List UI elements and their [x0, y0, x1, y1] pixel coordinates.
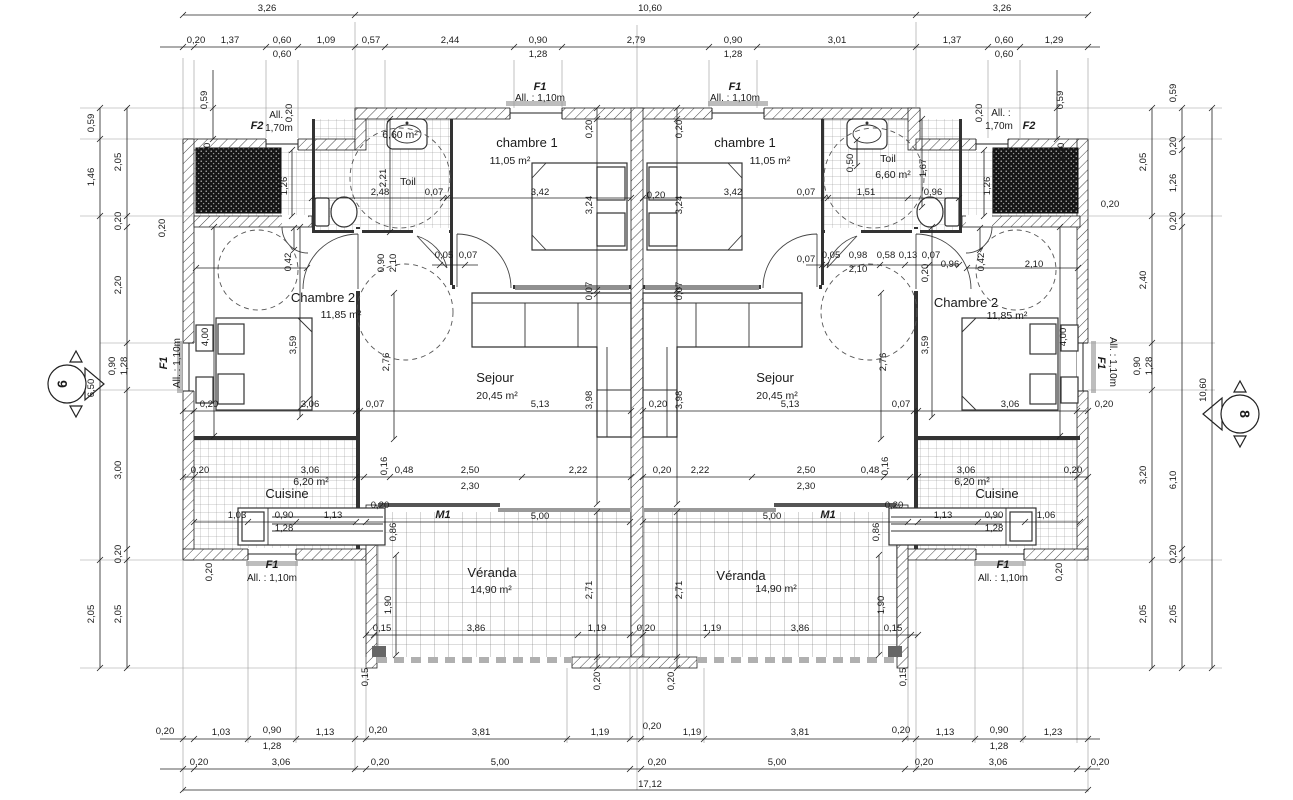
- dim-label: 1,28: [985, 523, 1004, 534]
- dim-label: 0,20: [647, 190, 666, 201]
- dim-label: 3,59: [288, 336, 299, 355]
- dim-label: 0,20: [1095, 399, 1114, 410]
- dim-label: 10,60: [1198, 378, 1209, 402]
- dim-label: 17,12: [638, 779, 662, 790]
- dim-label: 0,20: [1056, 143, 1067, 162]
- dim-label: 0,13: [899, 250, 918, 261]
- dim-label: 0,59: [199, 91, 210, 110]
- dim-label: 2,05: [1138, 153, 1149, 172]
- dim-label: 0,20: [653, 465, 672, 476]
- dim-label: 0,90: [990, 725, 1009, 736]
- dim-label: 0,90: [985, 510, 1004, 521]
- dim-label: 0,20: [648, 757, 667, 768]
- dim-label: 3,86: [467, 623, 486, 634]
- room-name-label: Cuisine: [265, 486, 308, 501]
- dim-label: 1,28: [1144, 357, 1155, 376]
- allege-label: All. : 1,10m: [247, 573, 297, 584]
- dim-label: 1,28: [275, 523, 294, 534]
- dim-label: 0,20: [371, 757, 390, 768]
- dim-label: 3,06: [272, 757, 291, 768]
- dimension-line: [806, 262, 962, 268]
- dimension-line: [1209, 105, 1215, 671]
- dim-label: 3,59: [920, 336, 931, 355]
- sofa-right: [643, 293, 802, 437]
- room-area-label: 11,05 m²: [750, 155, 791, 167]
- dim-label: 3,42: [724, 187, 743, 198]
- dim-label: 1,26: [279, 177, 290, 196]
- allege-label: All. :: [991, 108, 1010, 119]
- room-name-label: chambre 1: [714, 135, 775, 150]
- dim-label: 3,98: [584, 391, 595, 410]
- dim-label: 0,90: [376, 254, 387, 273]
- opening-code-label: M1: [435, 509, 450, 521]
- section-number-label: 8: [1237, 410, 1253, 418]
- dim-label: 2,50: [797, 465, 816, 476]
- dim-label: 0,16: [880, 457, 891, 476]
- dim-label: 0,60: [273, 49, 292, 60]
- dim-label: 5,00: [763, 511, 782, 522]
- dim-label: 0,20: [649, 399, 668, 410]
- dim-label: 0,07: [584, 282, 595, 301]
- room-area-label: Toil: [880, 153, 896, 165]
- dim-label: 0,20: [1168, 212, 1179, 231]
- dim-label: 3,06: [989, 757, 1008, 768]
- room-area-label: 20,45 m²: [476, 390, 518, 402]
- bed-chambre2-left: [196, 318, 312, 410]
- dim-label: 2,05: [1168, 605, 1179, 624]
- dim-label: 2,22: [691, 465, 710, 476]
- sideboard-right: [645, 285, 759, 290]
- sideboard-left: [515, 285, 629, 290]
- dimension-line: [210, 70, 216, 142]
- dim-label: 1,51: [857, 187, 876, 198]
- dim-label: 0,07: [366, 399, 385, 410]
- dim-label: 0,98: [849, 250, 868, 261]
- floor-plan-page: 3,2610,603,260,201,370,600,601,090,572,4…: [0, 0, 1293, 800]
- room-name-label: Véranda: [716, 568, 766, 583]
- dim-label: 3,06: [301, 399, 320, 410]
- sofa-left: [472, 293, 631, 437]
- room-name-label: Sejour: [476, 370, 514, 385]
- opening-code-label: F1: [1095, 357, 1107, 370]
- dim-label: 10,60: [638, 3, 662, 14]
- sliding-door-m1-right: [774, 503, 896, 507]
- dim-label: 0,20: [915, 757, 934, 768]
- opening-code-label: F1: [158, 357, 170, 370]
- dim-label: 1,67: [918, 159, 929, 178]
- dim-label: 0,20: [1168, 545, 1179, 564]
- dim-label: 2,71: [584, 581, 595, 600]
- dim-label: 1,23: [1044, 727, 1063, 738]
- dimension-line: [1179, 105, 1185, 671]
- dim-label: 3,98: [674, 391, 685, 410]
- dim-label: 1,28: [529, 49, 548, 60]
- dim-label: 0,86: [871, 523, 882, 542]
- dim-label: 2,30: [797, 481, 816, 492]
- dim-label: 1,46: [86, 168, 97, 187]
- dim-label: 1,19: [588, 623, 607, 634]
- dim-label: 2,40: [1138, 271, 1149, 290]
- dim-label: 0,42: [283, 253, 294, 272]
- room-name-label: Chambre 2: [291, 290, 355, 305]
- allege-label: 1,70m: [985, 121, 1013, 132]
- dim-label: 2,48: [371, 187, 390, 198]
- opening-code-label: F2: [251, 120, 264, 132]
- dim-label: 0,60: [995, 35, 1014, 46]
- dim-label: 1,13: [934, 510, 953, 521]
- room-area-label: 11,05 m²: [490, 155, 531, 167]
- dim-label: 1,26: [982, 177, 993, 196]
- dimension-line: [180, 12, 1091, 18]
- dim-label: 0,20: [204, 563, 215, 582]
- dim-label: 0,20: [584, 120, 595, 139]
- dim-label: 3,00: [113, 461, 124, 480]
- allege-label: All. : 1,10m: [710, 93, 760, 104]
- dim-label: 0,07: [425, 187, 444, 198]
- dim-label: 3,81: [472, 727, 491, 738]
- dim-label: 0,20: [156, 726, 175, 737]
- dim-label: 0,60: [995, 49, 1014, 60]
- dim-label: 2,79: [627, 35, 646, 46]
- dim-label: 0,15: [360, 668, 371, 687]
- dim-label: 2,71: [674, 581, 685, 600]
- dim-label: 1,13: [316, 727, 335, 738]
- dim-label: 0,07: [459, 250, 478, 261]
- dim-label: 2,76: [381, 353, 392, 372]
- dim-label: 0,20: [974, 104, 985, 123]
- dim-label: 6,50: [86, 379, 97, 398]
- dim-label: 1,03: [228, 510, 247, 521]
- dim-label: 1,19: [683, 727, 702, 738]
- dim-label: 5,00: [768, 757, 787, 768]
- dim-label: 2,20: [113, 276, 124, 295]
- dimension-line: [160, 766, 1100, 772]
- opening-code-label: F2: [1023, 120, 1036, 132]
- dim-label: 2,22: [569, 465, 588, 476]
- dim-label: 1,06: [1037, 510, 1056, 521]
- room-name-label: Sejour: [756, 370, 794, 385]
- allege-label: All. : 1,10m: [172, 338, 183, 388]
- dim-label: 2,05: [1138, 605, 1149, 624]
- dim-label: 0,07: [892, 399, 911, 410]
- dim-label: 3,26: [993, 3, 1012, 14]
- dim-label: 0,20: [920, 264, 931, 283]
- dim-label: 3,26: [258, 3, 277, 14]
- sink-right: [847, 119, 887, 149]
- dim-label: 5,00: [491, 757, 510, 768]
- allege-label: All. : 1,10m: [1107, 337, 1118, 387]
- dim-label: 0,42: [976, 253, 987, 272]
- opening-code-label: F1: [729, 81, 742, 93]
- room-name-label: chambre 1: [496, 135, 557, 150]
- dimension-line: [124, 105, 130, 671]
- dim-label: 5,00: [531, 511, 550, 522]
- dim-label: 0,96: [924, 187, 943, 198]
- dim-label: 0,07: [674, 282, 685, 301]
- dim-label: 0,90: [1132, 357, 1143, 376]
- dim-label: 0,20: [1101, 199, 1120, 210]
- dim-label: 3,06: [301, 465, 320, 476]
- dim-label: 2,50: [461, 465, 480, 476]
- dimension-line: [1149, 105, 1155, 671]
- dim-label: 0,20: [592, 672, 603, 691]
- dim-label: 2,10: [388, 254, 399, 273]
- kitchen-counter-right: [889, 508, 1036, 545]
- dim-label: 0,90: [263, 725, 282, 736]
- dim-label: 0,86: [388, 523, 399, 542]
- dim-label: 1,19: [703, 623, 722, 634]
- section-number-label: 6: [54, 380, 70, 388]
- dim-label: 0,20: [1168, 137, 1179, 156]
- dim-label: 1,19: [591, 727, 610, 738]
- toilet-right: [917, 197, 959, 227]
- dim-label: 0,05: [435, 250, 454, 261]
- dim-label: 0,20: [191, 465, 210, 476]
- dim-label: 0,90: [107, 357, 118, 376]
- room-name-label: Véranda: [467, 565, 517, 580]
- party-wall: [631, 108, 643, 657]
- dim-label: 0,20: [1064, 465, 1083, 476]
- dim-label: 1,28: [724, 49, 743, 60]
- dim-label: 0,20: [892, 725, 911, 736]
- dim-label: 0,58: [877, 250, 896, 261]
- dim-label: 1,90: [383, 596, 394, 615]
- dim-label: 2,76: [878, 353, 889, 372]
- dim-label: 0,20: [1091, 757, 1110, 768]
- sliding-door-m1-left: [378, 503, 500, 507]
- dim-label: 0,90: [529, 35, 548, 46]
- dim-label: 0,07: [797, 187, 816, 198]
- room-area-label: 11,85 m²: [321, 309, 362, 321]
- dim-label: 1,09: [317, 35, 336, 46]
- dim-label: 0,48: [395, 465, 414, 476]
- dim-label: 3,24: [584, 196, 595, 215]
- dim-label: 2,10: [1025, 259, 1044, 270]
- dim-label: 0,48: [861, 465, 880, 476]
- dim-label: 1,28: [263, 741, 282, 752]
- dim-label: 6,10: [1168, 471, 1179, 490]
- dim-label: 1,90: [876, 596, 887, 615]
- dim-label: 0,96: [941, 259, 960, 270]
- dim-label: 0,20: [885, 500, 904, 511]
- dim-label: 0,20: [187, 35, 206, 46]
- dim-label: 2,44: [441, 35, 460, 46]
- dimension-line: [180, 787, 1091, 793]
- dim-label: 1,28: [119, 357, 130, 376]
- dim-label: 4,00: [200, 328, 211, 347]
- dim-label: 0,16: [379, 457, 390, 476]
- floor-plan-svg: 3,2610,603,260,201,370,600,601,090,572,4…: [0, 0, 1293, 800]
- dim-label: 2,05: [113, 153, 124, 172]
- dim-label: 0,20: [666, 672, 677, 691]
- dim-label: 1,28: [990, 741, 1009, 752]
- dim-label: 0,15: [373, 623, 392, 634]
- dim-label: 3,86: [791, 623, 810, 634]
- dim-label: 0,57: [362, 35, 381, 46]
- bed-chambre1-left: [532, 163, 627, 250]
- kitchen-counter-left: [238, 508, 385, 545]
- dim-label: 5,13: [531, 399, 550, 410]
- dimension-line: [432, 262, 478, 268]
- dim-label: 0,20: [371, 500, 390, 511]
- opening-code-label: F1: [997, 559, 1010, 571]
- allege-label: All. : 1,10m: [515, 93, 565, 104]
- dim-label: 0,20: [674, 120, 685, 139]
- room-name-label: Cuisine: [975, 486, 1018, 501]
- dim-label: 3,06: [1001, 399, 1020, 410]
- opening-code-label: F1: [266, 559, 279, 571]
- dim-label: 3,06: [957, 465, 976, 476]
- opening-code-label: F1: [534, 81, 547, 93]
- dim-label: 0,20: [369, 725, 388, 736]
- dim-label: 1,37: [943, 35, 962, 46]
- dim-label: 0,50: [845, 154, 856, 173]
- dim-label: 2,05: [113, 605, 124, 624]
- dim-label: 1,13: [324, 510, 343, 521]
- room-area-label: 11,85 m²: [987, 310, 1028, 322]
- dim-label: 0,07: [922, 250, 941, 261]
- dim-label: 2,10: [849, 264, 868, 275]
- dim-label: 0,20: [637, 623, 656, 634]
- opening-code-label: M1: [820, 509, 835, 521]
- dim-label: 3,20: [1138, 466, 1149, 485]
- toilet-left: [315, 197, 357, 227]
- room-area-label: 14,90 m²: [470, 584, 512, 596]
- dim-label: 4,00: [1058, 328, 1069, 347]
- dim-label: 1,03: [212, 727, 231, 738]
- dim-label: 0,20: [643, 721, 662, 732]
- dim-label: 3,24: [674, 196, 685, 215]
- dim-label: 0,15: [898, 668, 909, 687]
- dim-label: 0,90: [724, 35, 743, 46]
- dim-label: 0,20: [157, 219, 168, 238]
- dim-label: 0,90: [275, 510, 294, 521]
- dim-label: 0,59: [86, 114, 97, 133]
- dim-label: 0,20: [202, 143, 213, 162]
- dim-label: 1,37: [221, 35, 240, 46]
- room-area-label: 6,60 m²: [875, 169, 911, 181]
- room-name-label: Chambre 2: [934, 295, 998, 310]
- room-area-label: 6,60 m²: [382, 129, 418, 141]
- dim-label: 3,01: [828, 35, 847, 46]
- dim-label: 0,20: [284, 104, 295, 123]
- dim-label: 0,60: [273, 35, 292, 46]
- dim-label: 0,20: [1054, 563, 1065, 582]
- dim-label: 0,20: [113, 545, 124, 564]
- allege-label: 1,70m: [265, 123, 293, 134]
- dim-label: 2,30: [461, 481, 480, 492]
- dim-label: 1,26: [1168, 174, 1179, 193]
- dim-label: 3,81: [791, 727, 810, 738]
- room-area-label: Toil: [400, 176, 416, 188]
- dim-label: 0,20: [200, 399, 219, 410]
- allege-label: All. : 1,10m: [978, 573, 1028, 584]
- dim-label: 1,13: [936, 727, 955, 738]
- dim-label: 0,59: [1168, 84, 1179, 103]
- dim-label: 2,21: [378, 169, 389, 188]
- dim-label: 0,59: [1055, 91, 1066, 110]
- dim-label: 0,20: [113, 212, 124, 231]
- dim-label: 0,05: [822, 250, 841, 261]
- dim-label: 0,07: [797, 254, 816, 265]
- dim-label: 5,13: [781, 399, 800, 410]
- dim-label: 1,29: [1045, 35, 1064, 46]
- dim-label: 0,15: [884, 623, 903, 634]
- dim-label: 2,05: [86, 605, 97, 624]
- bed-chambre1-right: [647, 163, 742, 250]
- dim-label: 0,20: [190, 757, 209, 768]
- room-area-label: 14,90 m²: [755, 583, 797, 595]
- dim-label: 3,42: [531, 187, 550, 198]
